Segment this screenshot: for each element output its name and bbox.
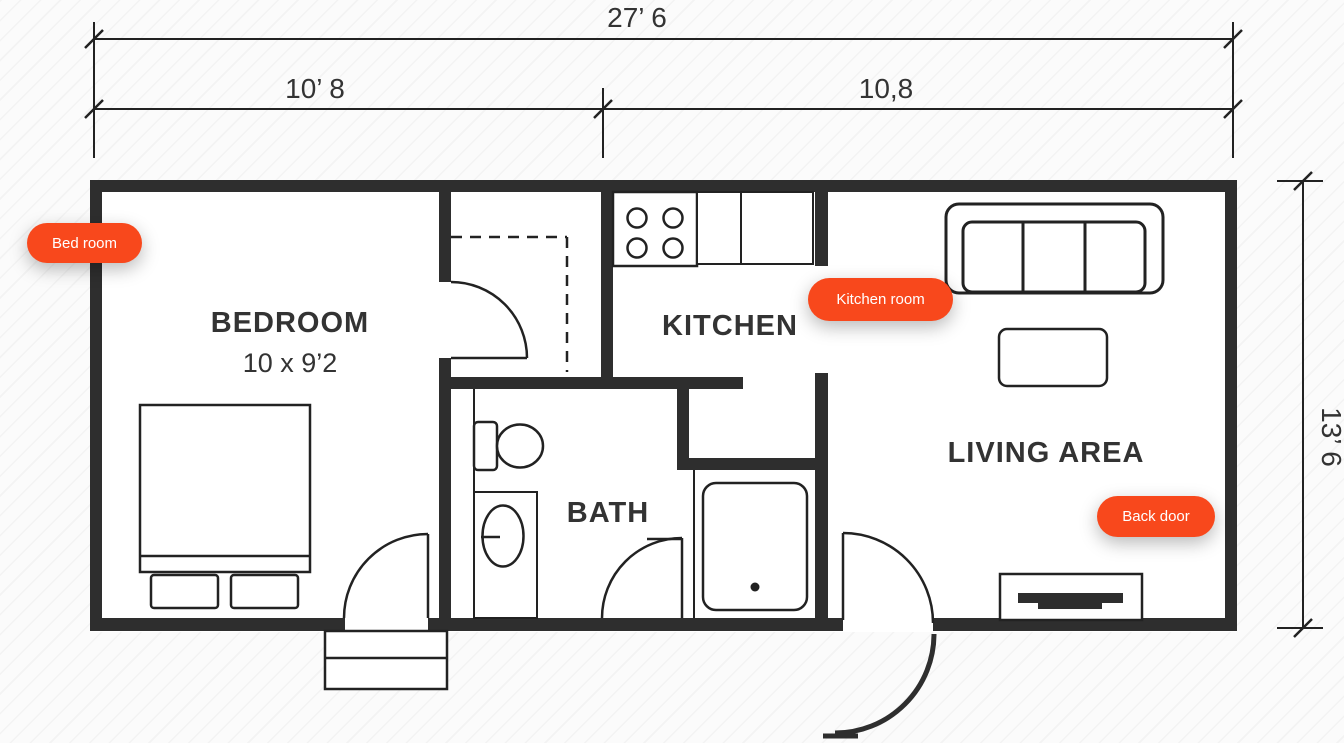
tag-back-door[interactable]: Back door: [1097, 496, 1215, 537]
drain-icon: [751, 583, 760, 592]
tag-bed-room[interactable]: Bed room: [27, 223, 142, 263]
wall-bedroom-upper: [439, 192, 451, 282]
wall-bedroom-lower: [439, 358, 451, 618]
room-label-kitchen: KITCHEN: [662, 310, 798, 342]
tag-kitchen-room-label: Kitchen room: [836, 292, 924, 307]
tag-kitchen-room[interactable]: Kitchen room: [808, 278, 953, 321]
pillow-icon: [231, 575, 298, 608]
back-door-outer-swing: [823, 634, 934, 736]
wall-kitchen-left: [601, 192, 613, 389]
dim-side-height: 13’ 6: [1316, 407, 1344, 467]
pillow-icon: [151, 575, 218, 608]
room-size-bedroom: 10 x 9’2: [243, 348, 338, 378]
tag-bed-room-label: Bed room: [52, 236, 117, 251]
steps-icon: [325, 631, 447, 689]
room-label-bedroom: BEDROOM: [211, 307, 369, 339]
wall-bath-top: [451, 377, 743, 389]
floor-plan: 27’ 6 10’ 8 10,8 13’ 6 BEDROOM 10 x 9’2 …: [0, 0, 1344, 743]
wall-bottom-1: [90, 618, 345, 631]
tv-stand-icon: [1000, 574, 1142, 620]
stove-icon: [613, 192, 697, 266]
dim-right-section: 10,8: [859, 73, 914, 104]
wall-shower-top: [677, 458, 817, 470]
wall-top: [90, 180, 1237, 192]
wall-right: [1225, 180, 1237, 631]
sink-vanity-icon: [474, 492, 537, 618]
counter-icon: [697, 192, 813, 264]
dim-left-section: 10’ 8: [285, 73, 345, 104]
wall-bath-right-upper: [677, 389, 689, 470]
wall-living-divider-lower: [815, 373, 828, 618]
wall-living-divider-upper: [815, 192, 828, 266]
dim-overall-width: 27’ 6: [607, 2, 667, 33]
tag-back-door-label: Back door: [1122, 509, 1190, 524]
wall-bottom-2: [428, 618, 843, 631]
room-label-bath: BATH: [567, 497, 649, 529]
toilet-icon: [474, 422, 543, 470]
room-label-living: LIVING AREA: [948, 437, 1145, 469]
shower-icon: [703, 483, 807, 610]
